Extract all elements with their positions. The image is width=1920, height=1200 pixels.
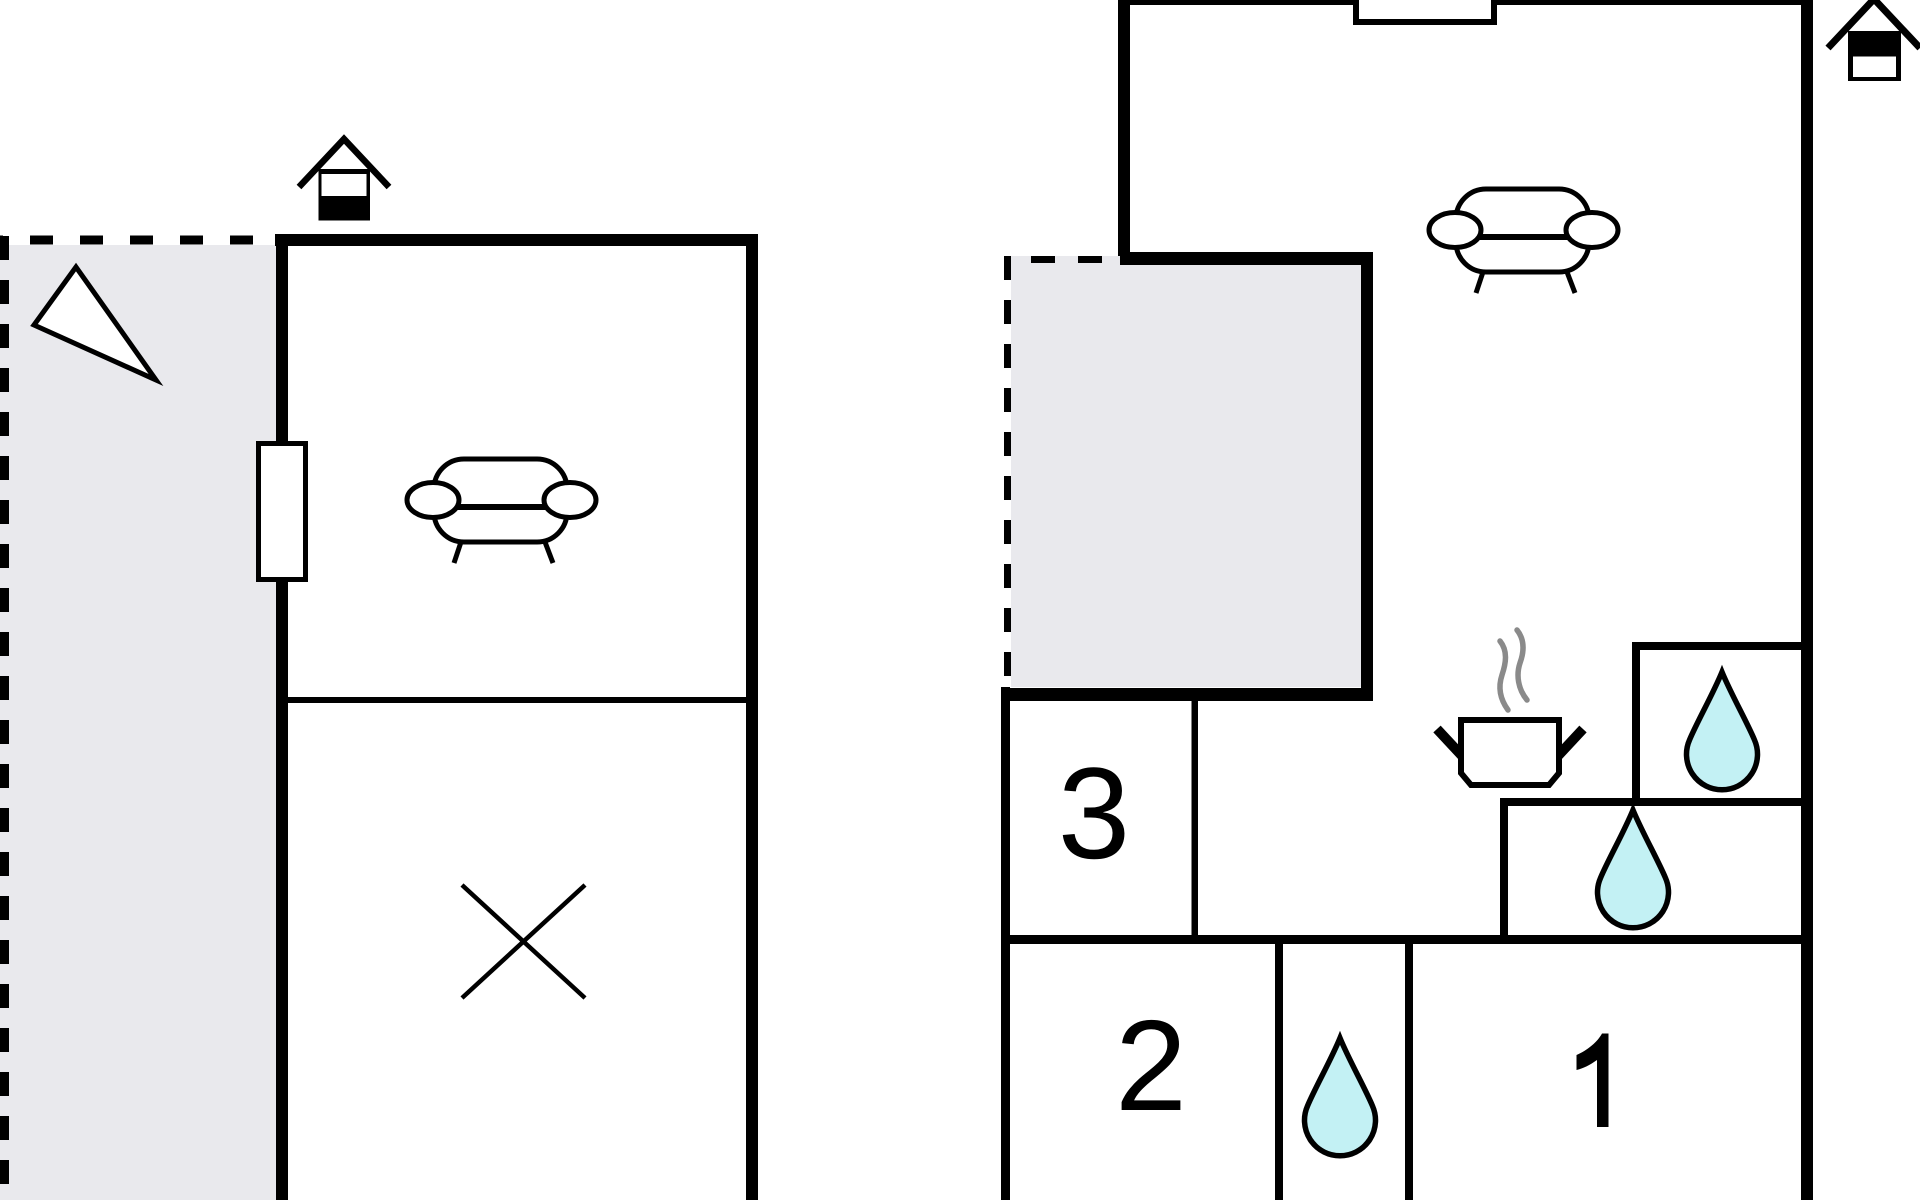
svg-text:3: 3 <box>1058 740 1130 886</box>
svg-text:2: 2 <box>1115 994 1187 1138</box>
